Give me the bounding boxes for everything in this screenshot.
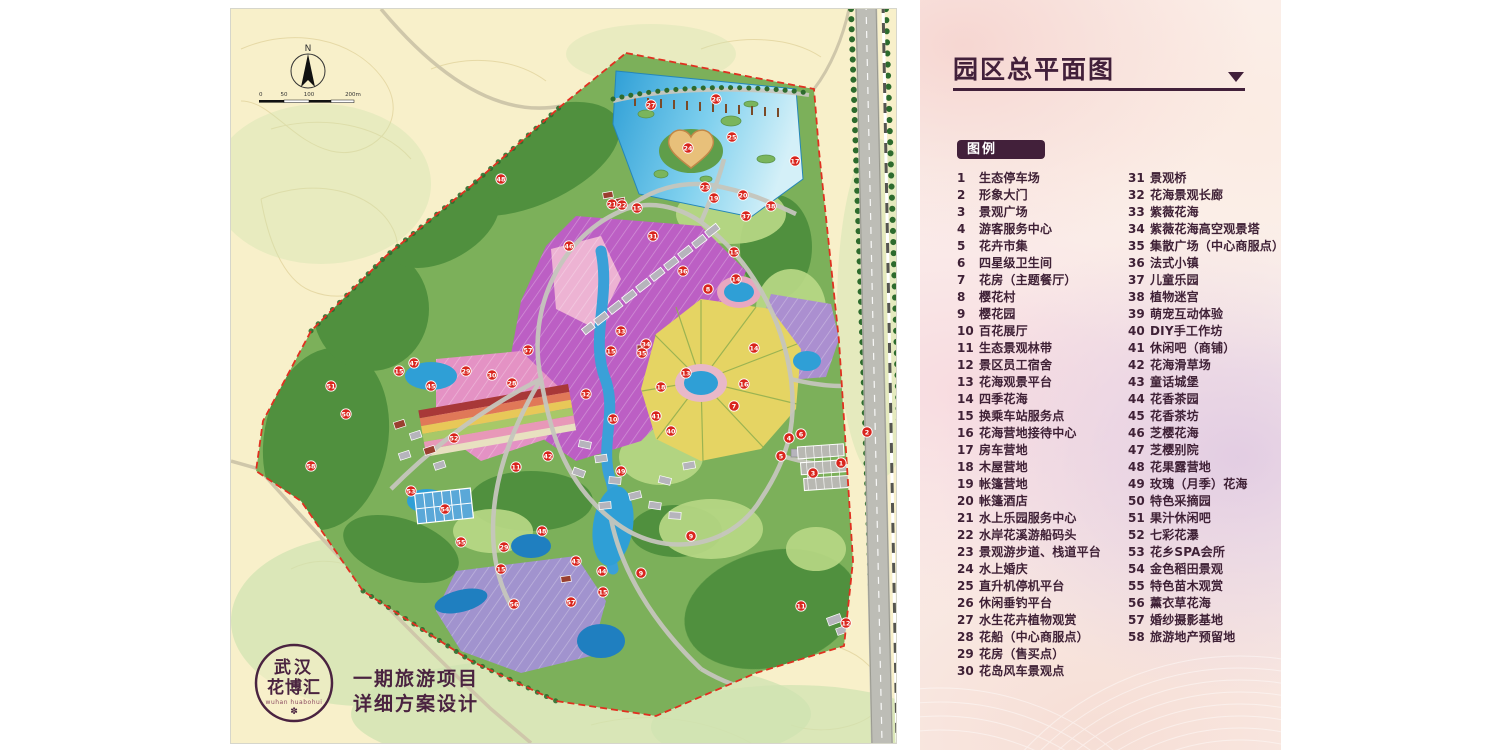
legend-item-57: 57婚纱摄影基地 xyxy=(1128,612,1278,629)
svg-text:36: 36 xyxy=(679,267,688,275)
legend-item-31: 31景观桥 xyxy=(1128,170,1278,187)
map-marker-30[interactable]: 30 xyxy=(487,370,497,380)
legend-item-56: 56薰衣草花海 xyxy=(1128,595,1278,612)
legend-item-16: 16花海营地接待中心 xyxy=(957,425,1125,442)
map-marker-7[interactable]: 7 xyxy=(729,401,739,411)
legend-item-39: 39萌宠互动体验 xyxy=(1128,306,1278,323)
masterplan-map: 2726252423172122154846311920373836151483… xyxy=(230,8,897,744)
map-marker-26[interactable]: 26 xyxy=(711,94,721,104)
svg-text:21: 21 xyxy=(608,200,617,208)
legend-item-36: 36法式小镇 xyxy=(1128,255,1278,272)
chevron-down-icon[interactable] xyxy=(1228,72,1244,82)
title-rule xyxy=(953,88,1245,91)
svg-text:100: 100 xyxy=(304,92,315,98)
map-marker-48[interactable]: 48 xyxy=(537,526,547,536)
legend-item-1: 1生态停车场 xyxy=(957,170,1125,187)
legend-item-24: 24水上婚庆 xyxy=(957,561,1125,578)
legend-item-13: 13花海观景平台 xyxy=(957,374,1125,391)
map-marker-4[interactable]: 4 xyxy=(784,433,794,443)
legend-item-41: 41休闲吧（商铺） xyxy=(1128,340,1278,357)
map-marker-22[interactable]: 22 xyxy=(617,200,627,210)
legend-item-29: 29花房（售买点） xyxy=(957,646,1125,663)
map-marker-6[interactable]: 6 xyxy=(796,429,806,439)
svg-text:17: 17 xyxy=(791,157,800,165)
svg-text:12: 12 xyxy=(842,619,851,627)
legend-item-14: 14四季花海 xyxy=(957,391,1125,408)
map-marker-12[interactable]: 12 xyxy=(841,618,851,628)
legend-item-58: 58旅游地产预留地 xyxy=(1128,629,1278,646)
map-marker-58[interactable]: 58 xyxy=(306,461,316,471)
brand-logo: 武汉 花博汇 wuhan huabohui ✽ xyxy=(256,645,332,721)
svg-text:15: 15 xyxy=(633,204,642,212)
svg-text:11: 11 xyxy=(512,463,521,471)
svg-text:33: 33 xyxy=(617,327,626,335)
legend-item-48: 48花果露营地 xyxy=(1128,459,1278,476)
map-marker-53[interactable]: 53 xyxy=(406,486,416,496)
svg-text:40: 40 xyxy=(667,427,676,435)
map-marker-27[interactable]: 27 xyxy=(646,100,656,110)
legend-item-2: 2形象大门 xyxy=(957,187,1125,204)
legend-item-37: 37儿童乐园 xyxy=(1128,272,1278,289)
map-marker-21[interactable]: 21 xyxy=(607,199,617,209)
map-marker-15[interactable]: 15 xyxy=(394,366,404,376)
svg-text:53: 53 xyxy=(407,487,416,495)
svg-text:3: 3 xyxy=(811,469,815,477)
svg-text:20: 20 xyxy=(739,191,748,199)
legend-item-4: 4游客服务中心 xyxy=(957,221,1125,238)
svg-text:46: 46 xyxy=(565,242,574,250)
svg-text:38: 38 xyxy=(767,202,776,210)
map-marker-13[interactable]: 13 xyxy=(681,368,691,378)
legend-column-2: 31景观桥32花海景观长廊33紫薇花海34紫薇花海高空观景塔35集散广场（中心商… xyxy=(1128,170,1278,646)
map-marker-37[interactable]: 37 xyxy=(741,211,751,221)
svg-text:14: 14 xyxy=(732,275,741,283)
svg-text:9: 9 xyxy=(639,569,644,577)
svg-text:29: 29 xyxy=(462,367,471,375)
svg-text:44: 44 xyxy=(598,567,607,575)
legend-panel: 园区总平面图 图例 1生态停车场2形象大门3景观广场4游客服务中心5花卉市集6四… xyxy=(920,0,1281,750)
map-marker-57[interactable]: 57 xyxy=(566,597,576,607)
masterplan-svg: 2726252423172122154846311920373836151483… xyxy=(231,9,896,743)
map-marker-40[interactable]: 40 xyxy=(666,426,676,436)
legend-item-15: 15换乘车站服务点 xyxy=(957,408,1125,425)
map-marker-32[interactable]: 32 xyxy=(581,389,591,399)
svg-text:51: 51 xyxy=(327,382,336,390)
svg-text:15: 15 xyxy=(599,588,608,596)
svg-text:13: 13 xyxy=(682,369,691,377)
legend-item-55: 55特色苗木观赏 xyxy=(1128,578,1278,595)
svg-text:6: 6 xyxy=(799,430,804,438)
legend-item-30: 30花岛风车景观点 xyxy=(957,663,1125,680)
svg-text:15: 15 xyxy=(730,248,739,256)
svg-text:0: 0 xyxy=(259,92,263,98)
legend-item-45: 45花香茶坊 xyxy=(1128,408,1278,425)
svg-text:50: 50 xyxy=(281,92,288,98)
svg-text:43: 43 xyxy=(572,557,581,565)
legend-item-38: 38植物迷宫 xyxy=(1128,289,1278,306)
svg-text:26: 26 xyxy=(712,95,721,103)
legend-item-5: 5花卉市集 xyxy=(957,238,1125,255)
svg-text:37: 37 xyxy=(742,212,751,220)
svg-text:29: 29 xyxy=(500,543,509,551)
map-marker-15[interactable]: 15 xyxy=(729,247,739,257)
legend-item-51: 51果汁休闲吧 xyxy=(1128,510,1278,527)
map-marker-17[interactable]: 17 xyxy=(790,156,800,166)
legend-item-34: 34紫薇花海高空观景塔 xyxy=(1128,221,1278,238)
map-marker-54[interactable]: 54 xyxy=(440,504,450,514)
svg-text:15: 15 xyxy=(497,565,506,573)
map-marker-48[interactable]: 48 xyxy=(496,174,506,184)
svg-text:10: 10 xyxy=(609,415,618,423)
legend-header-badge: 图例 xyxy=(957,140,1045,159)
svg-text:27: 27 xyxy=(647,101,656,109)
legend-item-28: 28花船（中心商服点） xyxy=(957,629,1125,646)
svg-text:24: 24 xyxy=(684,144,693,152)
svg-text:57: 57 xyxy=(524,346,533,354)
svg-text:200m: 200m xyxy=(345,92,361,98)
map-marker-33[interactable]: 33 xyxy=(616,326,626,336)
map-marker-23[interactable]: 23 xyxy=(700,182,710,192)
svg-text:25: 25 xyxy=(728,133,737,141)
svg-text:1: 1 xyxy=(839,459,843,467)
map-marker-56[interactable]: 56 xyxy=(509,599,519,609)
svg-text:花博汇: 花博汇 xyxy=(267,677,321,698)
legend-item-9: 9樱花园 xyxy=(957,306,1125,323)
map-marker-24[interactable]: 24 xyxy=(683,143,693,153)
map-marker-3[interactable]: 3 xyxy=(808,468,818,478)
map-marker-35[interactable]: 35 xyxy=(637,348,647,358)
legend-item-44: 44花香茶园 xyxy=(1128,391,1278,408)
svg-text:18: 18 xyxy=(657,383,666,391)
map-marker-16[interactable]: 16 xyxy=(739,379,749,389)
legend-item-42: 42花海滑草场 xyxy=(1128,357,1278,374)
map-marker-9[interactable]: 9 xyxy=(636,568,646,578)
map-marker-29[interactable]: 29 xyxy=(499,542,509,552)
svg-text:47: 47 xyxy=(410,359,419,367)
legend-item-50: 50特色采摘园 xyxy=(1128,493,1278,510)
page: { "map": { "north_label": "N", "scale_la… xyxy=(0,0,1500,750)
svg-text:48: 48 xyxy=(538,527,547,535)
legend-item-22: 22水岸花溪游船码头 xyxy=(957,527,1125,544)
map-marker-19[interactable]: 19 xyxy=(709,193,719,203)
legend-item-32: 32花海景观长廊 xyxy=(1128,187,1278,204)
svg-text:54: 54 xyxy=(441,505,450,513)
svg-text:58: 58 xyxy=(307,462,316,470)
svg-text:4: 4 xyxy=(787,434,792,442)
legend-item-46: 46芝樱花海 xyxy=(1128,425,1278,442)
svg-text:16: 16 xyxy=(740,380,749,388)
svg-text:41: 41 xyxy=(652,412,661,420)
svg-text:15: 15 xyxy=(395,367,404,375)
legend-item-35: 35集散广场（中心商服点） xyxy=(1128,238,1278,255)
map-marker-9[interactable]: 9 xyxy=(686,531,696,541)
svg-text:23: 23 xyxy=(701,183,710,191)
map-marker-47[interactable]: 47 xyxy=(409,358,419,368)
svg-text:5: 5 xyxy=(779,452,783,460)
map-marker-11[interactable]: 11 xyxy=(511,462,521,472)
legend-item-3: 3景观广场 xyxy=(957,204,1125,221)
legend-item-6: 6四星级卫生间 xyxy=(957,255,1125,272)
svg-text:32: 32 xyxy=(582,390,591,398)
svg-text:56: 56 xyxy=(510,600,519,608)
map-marker-20[interactable]: 20 xyxy=(738,190,748,200)
map-marker-49[interactable]: 49 xyxy=(616,466,626,476)
legend-item-23: 23景观游步道、栈道平台 xyxy=(957,544,1125,561)
page-title: 园区总平面图 xyxy=(953,50,1115,86)
svg-text:✽: ✽ xyxy=(290,707,298,717)
map-marker-25[interactable]: 25 xyxy=(727,132,737,142)
svg-text:2: 2 xyxy=(865,428,869,436)
svg-text:武汉: 武汉 xyxy=(274,657,314,678)
svg-text:28: 28 xyxy=(508,379,517,387)
svg-text:11: 11 xyxy=(797,602,806,610)
legend-item-47: 47芝樱别院 xyxy=(1128,442,1278,459)
map-marker-2[interactable]: 2 xyxy=(862,427,872,437)
map-marker-42[interactable]: 42 xyxy=(543,451,553,461)
map-marker-44[interactable]: 44 xyxy=(597,566,607,576)
svg-text:详细方案设计: 详细方案设计 xyxy=(353,692,479,715)
map-marker-38[interactable]: 38 xyxy=(766,201,776,211)
map-marker-46[interactable]: 46 xyxy=(564,241,574,251)
svg-text:一期旅游项目: 一期旅游项目 xyxy=(353,667,479,690)
legend-item-25: 25直升机停机平台 xyxy=(957,578,1125,595)
legend-item-53: 53花乡SPA会所 xyxy=(1128,544,1278,561)
svg-text:55: 55 xyxy=(457,538,466,546)
svg-text:35: 35 xyxy=(638,349,647,357)
map-marker-15[interactable]: 15 xyxy=(598,587,608,597)
map-marker-14[interactable]: 14 xyxy=(749,343,759,353)
legend-item-49: 49玫瑰（月季）花海 xyxy=(1128,476,1278,493)
map-marker-50[interactable]: 50 xyxy=(341,409,351,419)
legend-item-17: 17房车营地 xyxy=(957,442,1125,459)
legend-item-40: 40DIY手工作坊 xyxy=(1128,323,1278,340)
svg-text:19: 19 xyxy=(710,194,719,202)
svg-text:48: 48 xyxy=(497,175,506,183)
map-marker-31[interactable]: 31 xyxy=(648,231,658,241)
legend-item-19: 19帐篷营地 xyxy=(957,476,1125,493)
map-marker-15[interactable]: 15 xyxy=(496,564,506,574)
map-marker-36[interactable]: 36 xyxy=(678,266,688,276)
svg-text:45: 45 xyxy=(427,382,436,390)
map-marker-14[interactable]: 14 xyxy=(731,274,741,284)
svg-text:42: 42 xyxy=(544,452,553,460)
map-marker-43[interactable]: 43 xyxy=(571,556,581,566)
map-marker-51[interactable]: 51 xyxy=(326,381,336,391)
map-marker-41[interactable]: 41 xyxy=(651,411,661,421)
map-marker-15[interactable]: 15 xyxy=(632,203,642,213)
map-marker-18[interactable]: 18 xyxy=(656,382,666,392)
legend-item-27: 27水生花卉植物观赏 xyxy=(957,612,1125,629)
svg-text:31: 31 xyxy=(649,232,658,240)
map-marker-11[interactable]: 11 xyxy=(796,601,806,611)
legend-item-54: 54金色稻田景观 xyxy=(1128,561,1278,578)
svg-text:50: 50 xyxy=(342,410,351,418)
svg-text:15: 15 xyxy=(607,347,616,355)
svg-text:30: 30 xyxy=(488,371,497,379)
legend-item-18: 18木屋营地 xyxy=(957,459,1125,476)
svg-text:34: 34 xyxy=(642,340,651,348)
legend-item-12: 12景区员工宿舍 xyxy=(957,357,1125,374)
svg-text:22: 22 xyxy=(618,201,627,209)
svg-text:52: 52 xyxy=(450,434,459,442)
map-marker-55[interactable]: 55 xyxy=(456,537,466,547)
map-marker-29[interactable]: 29 xyxy=(461,366,471,376)
map-marker-52[interactable]: 52 xyxy=(449,433,459,443)
legend-item-10: 10百花展厅 xyxy=(957,323,1125,340)
legend-column-1: 1生态停车场2形象大门3景观广场4游客服务中心5花卉市集6四星级卫生间7花房（主… xyxy=(957,170,1125,680)
map-marker-57[interactable]: 57 xyxy=(523,345,533,355)
map-marker-28[interactable]: 28 xyxy=(507,378,517,388)
legend-item-26: 26休闲垂钓平台 xyxy=(957,595,1125,612)
svg-text:wuhan huabohui: wuhan huabohui xyxy=(266,699,323,706)
svg-text:9: 9 xyxy=(689,532,694,540)
legend-item-21: 21水上乐园服务中心 xyxy=(957,510,1125,527)
svg-text:7: 7 xyxy=(732,402,736,410)
map-marker-1[interactable]: 1 xyxy=(836,458,846,468)
legend-item-33: 33紫薇花海 xyxy=(1128,204,1278,221)
legend-item-8: 8樱花村 xyxy=(957,289,1125,306)
svg-text:8: 8 xyxy=(706,285,711,293)
svg-text:14: 14 xyxy=(750,344,759,352)
map-marker-8[interactable]: 8 xyxy=(703,284,713,294)
map-marker-45[interactable]: 45 xyxy=(426,381,436,391)
legend-item-52: 52七彩花瀑 xyxy=(1128,527,1278,544)
legend-item-7: 7花房（主题餐厅） xyxy=(957,272,1125,289)
map-marker-15[interactable]: 15 xyxy=(606,346,616,356)
map-marker-10[interactable]: 10 xyxy=(608,414,618,424)
legend-item-43: 43童话城堡 xyxy=(1128,374,1278,391)
svg-text:N: N xyxy=(305,44,312,54)
map-marker-5[interactable]: 5 xyxy=(776,451,786,461)
legend-item-11: 11生态景观林带 xyxy=(957,340,1125,357)
svg-text:57: 57 xyxy=(567,598,576,606)
svg-text:49: 49 xyxy=(617,467,626,475)
legend-item-20: 20帐篷酒店 xyxy=(957,493,1125,510)
